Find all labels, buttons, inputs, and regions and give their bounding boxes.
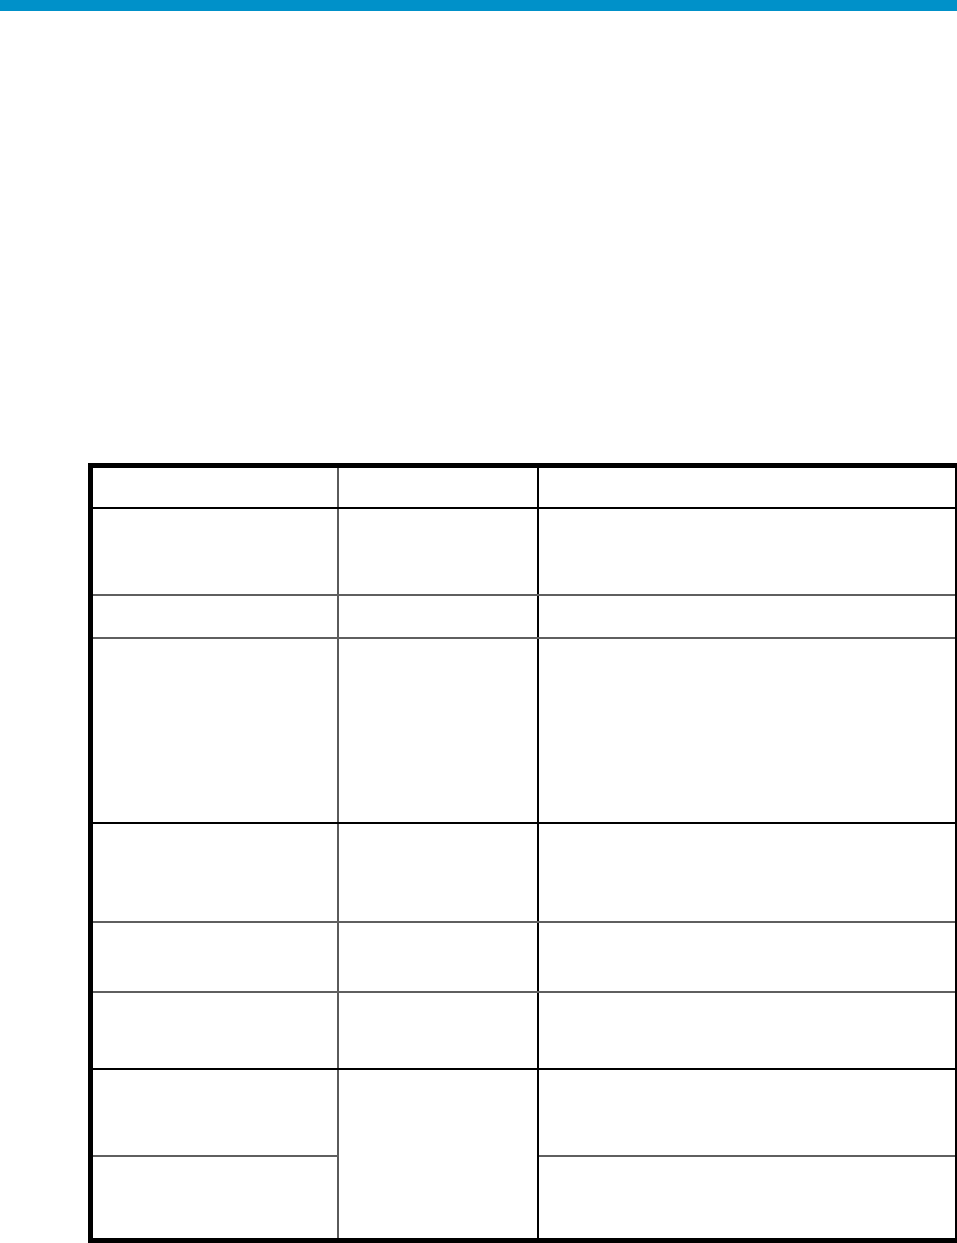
- table-cell: [91, 1156, 338, 1241]
- table-row: [91, 823, 957, 922]
- table-cell: [91, 508, 338, 596]
- document-page: [0, 0, 957, 1243]
- table-cell: [338, 466, 538, 508]
- table-cell: [338, 595, 538, 637]
- table-cell: [538, 638, 957, 823]
- table-cell: [538, 466, 957, 508]
- table-row: [91, 1069, 957, 1156]
- table-cell: [91, 595, 338, 637]
- table-cell: [538, 922, 957, 992]
- table-row: [91, 922, 957, 992]
- table-cell-merged: [338, 1069, 538, 1240]
- top-blue-rule: [0, 0, 957, 11]
- table-cell: [538, 823, 957, 922]
- table-cell: [538, 508, 957, 596]
- table-cell: [538, 1069, 957, 1156]
- table-header-row: [91, 466, 957, 508]
- table-cell: [538, 1156, 957, 1241]
- table-cell: [91, 922, 338, 992]
- table-cell: [338, 823, 538, 922]
- table-row: [91, 992, 957, 1070]
- table-cell: [91, 823, 338, 922]
- table-cell: [538, 595, 957, 637]
- table-row: [91, 638, 957, 823]
- table-cell: [338, 922, 538, 992]
- data-table: [88, 463, 957, 1243]
- table-row: [91, 508, 957, 596]
- table-cell: [338, 992, 538, 1070]
- table-cell: [538, 992, 957, 1070]
- table-cell: [91, 1069, 338, 1156]
- table-cell: [91, 466, 338, 508]
- table-cell: [91, 992, 338, 1070]
- table-cell: [338, 638, 538, 823]
- table-cell: [338, 508, 538, 596]
- table-row: [91, 595, 957, 637]
- table-cell: [91, 638, 338, 823]
